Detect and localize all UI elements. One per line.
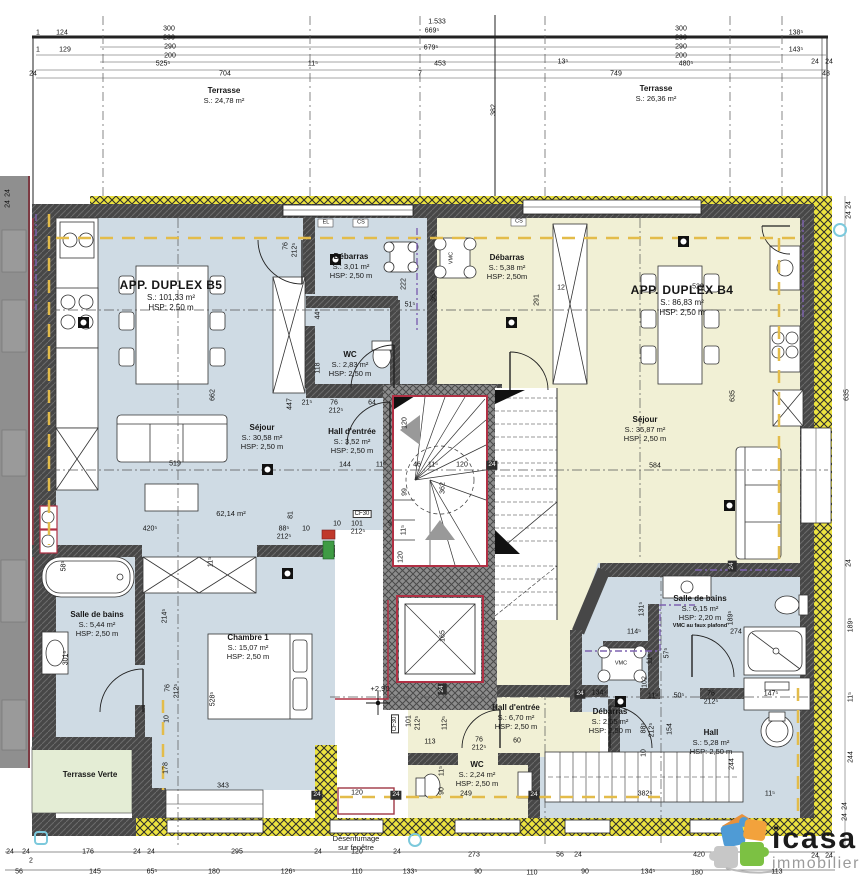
floor-plan: Terrasse S.: 24,78 m² Terrasse S.: 26,36… (0, 0, 859, 879)
equipment-red-icon (322, 530, 335, 539)
neighbour-building (0, 176, 30, 768)
floor-plan-drawing (0, 0, 859, 879)
terrace-grid-lines (103, 16, 782, 210)
equipment-green-icon (323, 541, 334, 559)
